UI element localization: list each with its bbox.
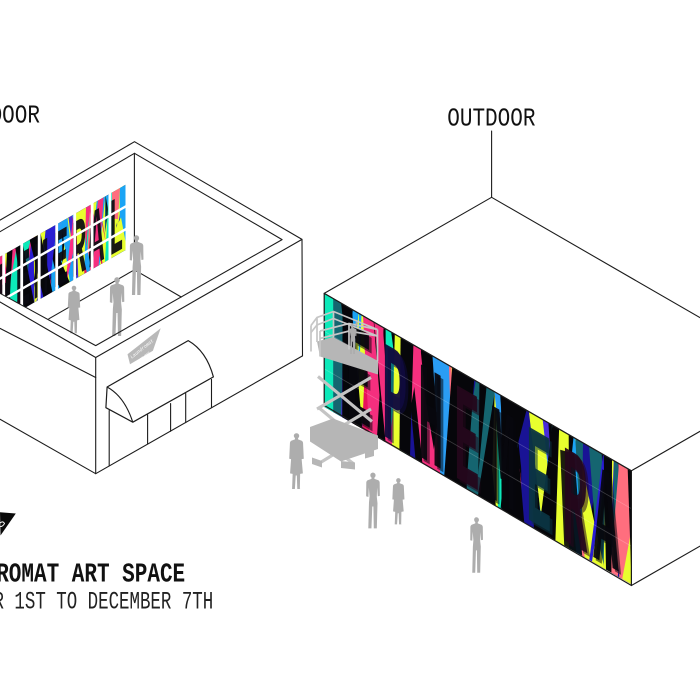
svg-text:INDOOR: INDOOR (0, 102, 40, 132)
svg-text:NOVEMBER 1ST TO DECEMBER 7TH: NOVEMBER 1ST TO DECEMBER 7TH (0, 587, 213, 616)
svg-text:OUTDOOR: OUTDOOR (447, 105, 535, 135)
svg-text:LAUNDROMAT ART SPACE: LAUNDROMAT ART SPACE (0, 560, 185, 590)
